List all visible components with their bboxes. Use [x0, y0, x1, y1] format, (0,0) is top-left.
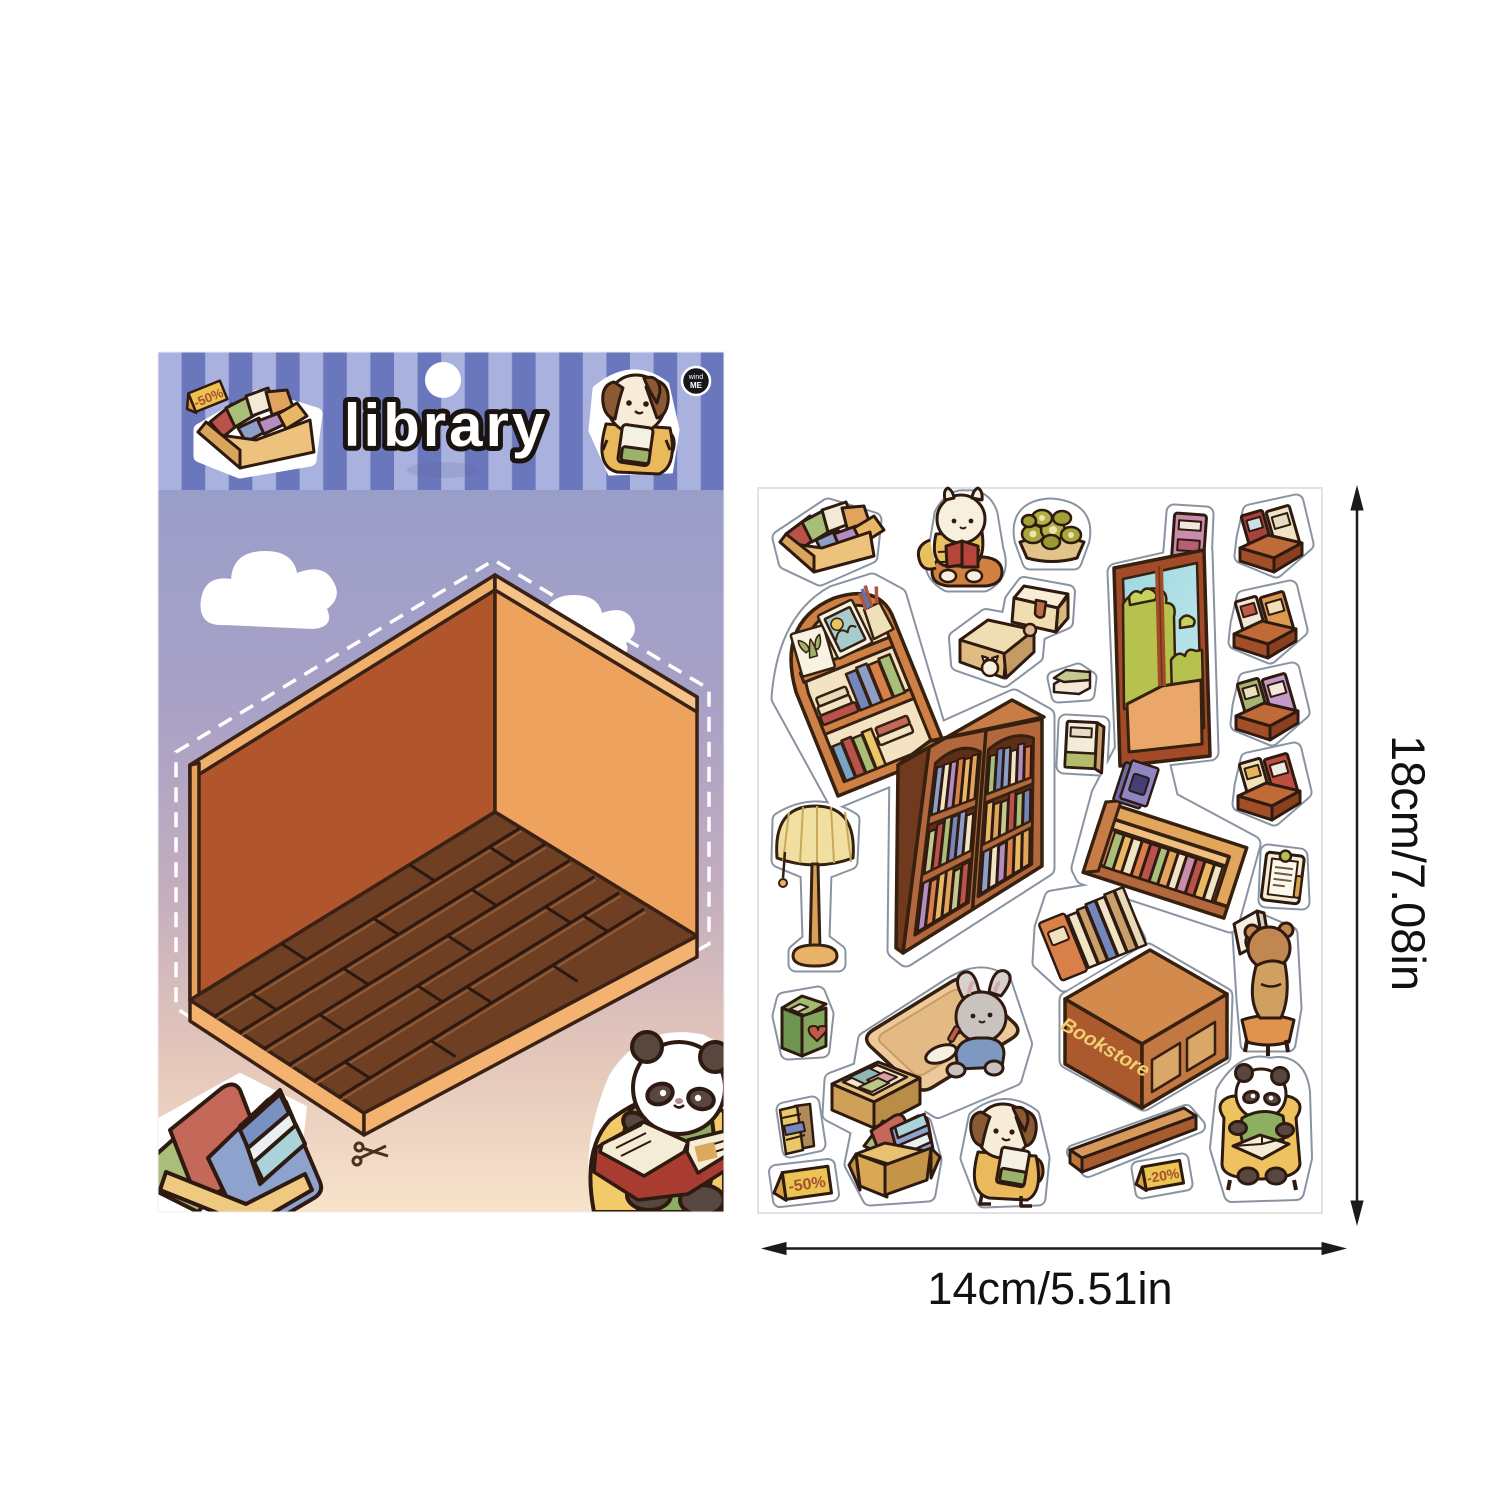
svg-text:library: library — [344, 392, 548, 459]
svg-text:ME: ME — [690, 381, 703, 390]
svg-text:14cm/5.51in: 14cm/5.51in — [927, 1263, 1172, 1314]
svg-text:18cm/7.08in: 18cm/7.08in — [1382, 735, 1435, 991]
svg-text:wind: wind — [688, 374, 704, 381]
